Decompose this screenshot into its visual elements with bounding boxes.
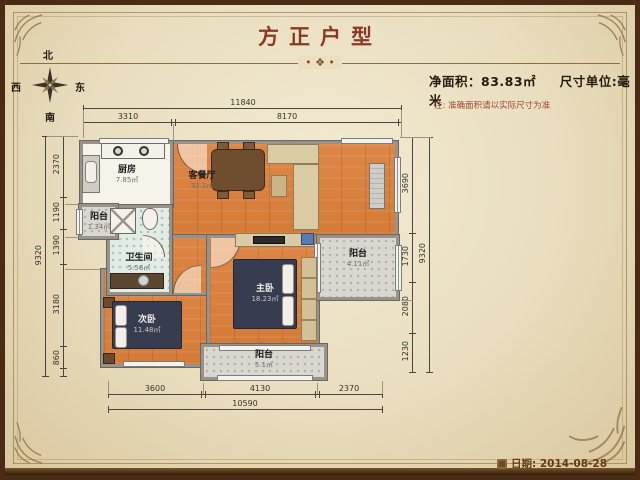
date-label: 日期: 2014-08-28 (511, 456, 607, 471)
dim-line-top-total (83, 108, 402, 109)
divider-ornament-icon: • ❖ • (298, 56, 342, 69)
dim-line-left-total (45, 136, 46, 377)
dim-top-seg-1: 3310 (118, 112, 138, 121)
sink-basin-icon (85, 161, 97, 183)
dim-line-right-total (429, 137, 430, 372)
dim-bottom-seg-1: 3600 (145, 384, 165, 393)
dim-line-right-segments (412, 137, 413, 372)
dim-bottom-seg-2: 4130 (250, 384, 270, 393)
compass-west-label: 西 (11, 79, 21, 94)
vanity-sink-icon (138, 275, 149, 286)
window (341, 138, 393, 144)
dim-bottom-seg-3: 2370 (339, 384, 359, 393)
air-conditioner-icon (369, 163, 385, 209)
dim-top-total: 11840 (230, 98, 255, 107)
compass-east-label: 东 (75, 79, 85, 94)
dim-right-seg-2: 1730 (401, 246, 410, 266)
room-area-master: 18.23㎡ (251, 295, 278, 303)
seal-icon (497, 459, 507, 469)
compass-north-label: 北 (43, 47, 53, 62)
coffee-table (271, 175, 287, 197)
room-label-second: 次卧 (138, 315, 156, 326)
room-label-balcony-bottom: 阳台 5.1㎡ (231, 350, 297, 369)
room-label-balcony-left: 阳台 1.34㎡ (81, 212, 117, 231)
floorplan-page: 方正户型 • ❖ • 净面积：83.83㎡ 尺寸单位:毫米 注: 准确面积请以实… (0, 0, 640, 480)
dim-top-seg-2: 8170 (277, 112, 297, 121)
dim-line-bottom-segments (108, 394, 382, 395)
corner-flourish-icon (543, 381, 627, 465)
nightstand (103, 353, 115, 364)
dim-bottom-total: 10590 (232, 399, 257, 408)
room-label-bathroom: 卫生间 5.56㎡ (113, 253, 165, 272)
net-area-label: 净面积：83.83㎡ (429, 74, 536, 89)
dim-right-total: 9320 (418, 243, 427, 263)
tv-icon (253, 236, 285, 244)
dim-line-left-segments (63, 136, 64, 377)
accuracy-note: 注: 准确面积请以实际尺寸为准 (434, 99, 550, 111)
compass-south-label: 南 (45, 109, 55, 124)
room-label-master: 主卧 (256, 284, 274, 295)
dim-left-seg-5: 860 (52, 350, 61, 365)
room-label-kitchen: 厨房 7.85㎡ (99, 165, 155, 184)
date-row: 日期: 2014-08-28 (497, 456, 607, 471)
window (394, 157, 401, 213)
dim-right-seg-4: 1230 (401, 341, 410, 361)
burner-icon (113, 146, 123, 156)
compass-rose-icon (31, 66, 69, 104)
dim-left-seg-1: 2370 (52, 154, 61, 174)
burner-icon (139, 146, 149, 156)
chair (243, 191, 255, 199)
dim-right-seg-1: 3690 (401, 173, 410, 193)
bathroom-vanity (110, 273, 164, 289)
room-label-living: 客餐厅 32.2㎡ (173, 171, 231, 190)
sofa (293, 164, 319, 230)
wardrobe (301, 257, 317, 341)
chair (301, 233, 314, 245)
sofa (267, 144, 319, 164)
bed-master: 主卧 18.23㎡ (233, 259, 297, 329)
dim-left-seg-4: 3180 (52, 294, 61, 314)
room-area-second: 11.48㎡ (133, 326, 160, 334)
room-label-balcony-right: 阳台 4.11㎡ (327, 249, 389, 268)
page-title: 方正户型 (5, 21, 635, 51)
window (123, 361, 185, 367)
dim-left-seg-2: 1190 (52, 202, 61, 222)
chair (217, 191, 229, 199)
toilet-icon (142, 208, 158, 230)
dim-left-total: 9320 (34, 245, 43, 265)
stove-icon (101, 143, 165, 159)
window (217, 375, 313, 381)
dim-left-seg-3: 1390 (52, 235, 61, 255)
dim-line-top-segments (83, 122, 402, 123)
dim-line-bottom-total (108, 409, 382, 410)
corner-flourish-icon (13, 403, 75, 465)
bed-second: 次卧 11.48㎡ (112, 301, 182, 349)
